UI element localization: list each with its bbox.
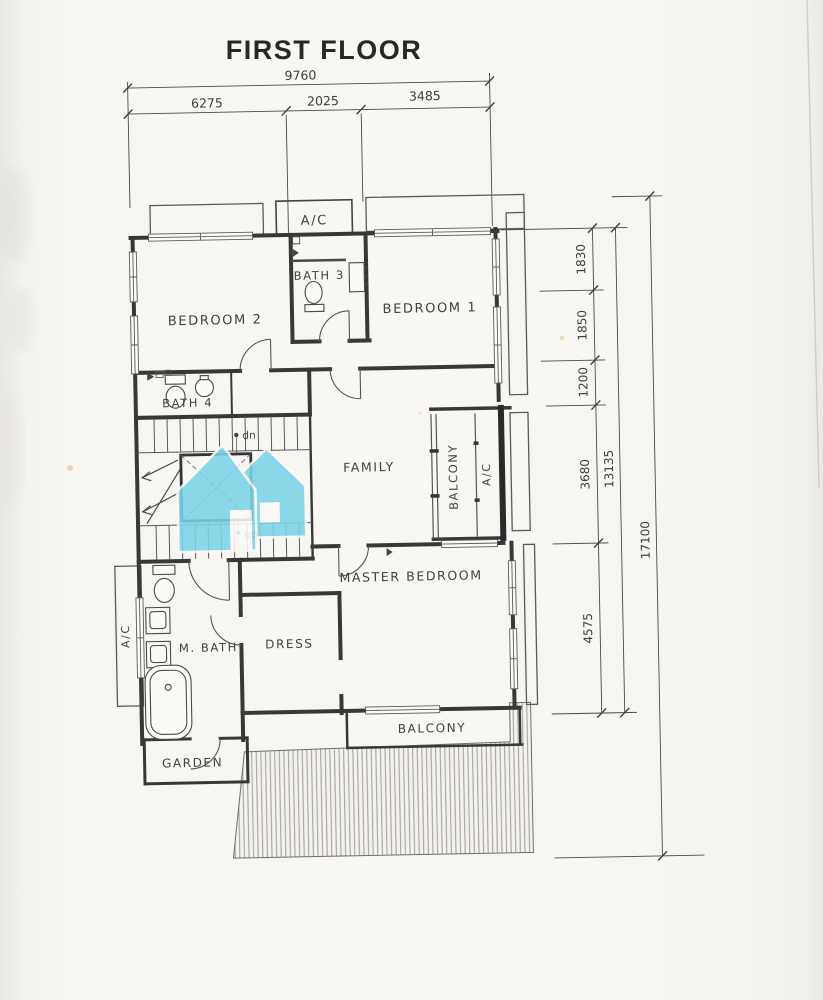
ac-top-label: A/C bbox=[301, 213, 328, 229]
scan-artifacts bbox=[0, 0, 819, 512]
watermark-door-cutout bbox=[230, 510, 253, 551]
floor-plan-drawing: 9760 6275 2025 3485 1830 1850 1200 bbox=[105, 60, 704, 871]
dim-top-segment-2: 2025 bbox=[307, 93, 339, 109]
master-bedroom-label: MASTER BEDROOM bbox=[339, 567, 482, 585]
dim-right-1830: 1830 bbox=[574, 244, 589, 275]
dim-right-3680: 3680 bbox=[578, 459, 593, 490]
paper-edge-line bbox=[807, 0, 819, 488]
floorplan-svg: FIRST FLOOR 9760 6275 2025 3485 bbox=[0, 0, 823, 1000]
ac-mid-label: A/C bbox=[480, 462, 493, 486]
balcony-mid-label: BALCONY bbox=[446, 444, 461, 510]
dim-right-1200: 1200 bbox=[576, 367, 591, 398]
bath4-label: BATH 4 bbox=[162, 395, 213, 410]
ac-left-label: A/C bbox=[119, 624, 132, 648]
dim-overall-width: 9760 bbox=[284, 67, 316, 83]
family-label: FAMILY bbox=[343, 459, 395, 475]
hatched-roof-area bbox=[231, 702, 534, 858]
dim-top-segment-3: 3485 bbox=[409, 88, 441, 104]
balcony-bottom-label: BALCONY bbox=[398, 721, 467, 736]
dim-right-13135: 13135 bbox=[602, 450, 617, 488]
dim-top-segment-1: 6275 bbox=[191, 95, 223, 111]
garden-label: GARDEN bbox=[162, 755, 224, 770]
mbath-label: M. BATH bbox=[179, 640, 238, 655]
watermark-chimney bbox=[289, 495, 301, 517]
right-dimension-ticks bbox=[587, 191, 667, 861]
scanned-floorplan-page: FIRST FLOOR 9760 6275 2025 3485 bbox=[0, 0, 823, 1000]
bath3-label: BATH 3 bbox=[294, 268, 345, 283]
dim-right-4575: 4575 bbox=[581, 613, 596, 644]
stair-dn-label: dn bbox=[242, 430, 256, 442]
page-title: FIRST FLOOR bbox=[226, 35, 422, 65]
dim-right-1850: 1850 bbox=[575, 310, 590, 341]
bedroom1-label: BEDROOM 1 bbox=[382, 300, 477, 317]
bedroom2-label: BEDROOM 2 bbox=[168, 312, 263, 329]
dim-right-17100: 17100 bbox=[638, 521, 653, 559]
stair-dn-dot bbox=[234, 433, 238, 437]
watermark-window-cutout bbox=[260, 502, 280, 522]
dress-label: DRESS bbox=[265, 637, 314, 652]
